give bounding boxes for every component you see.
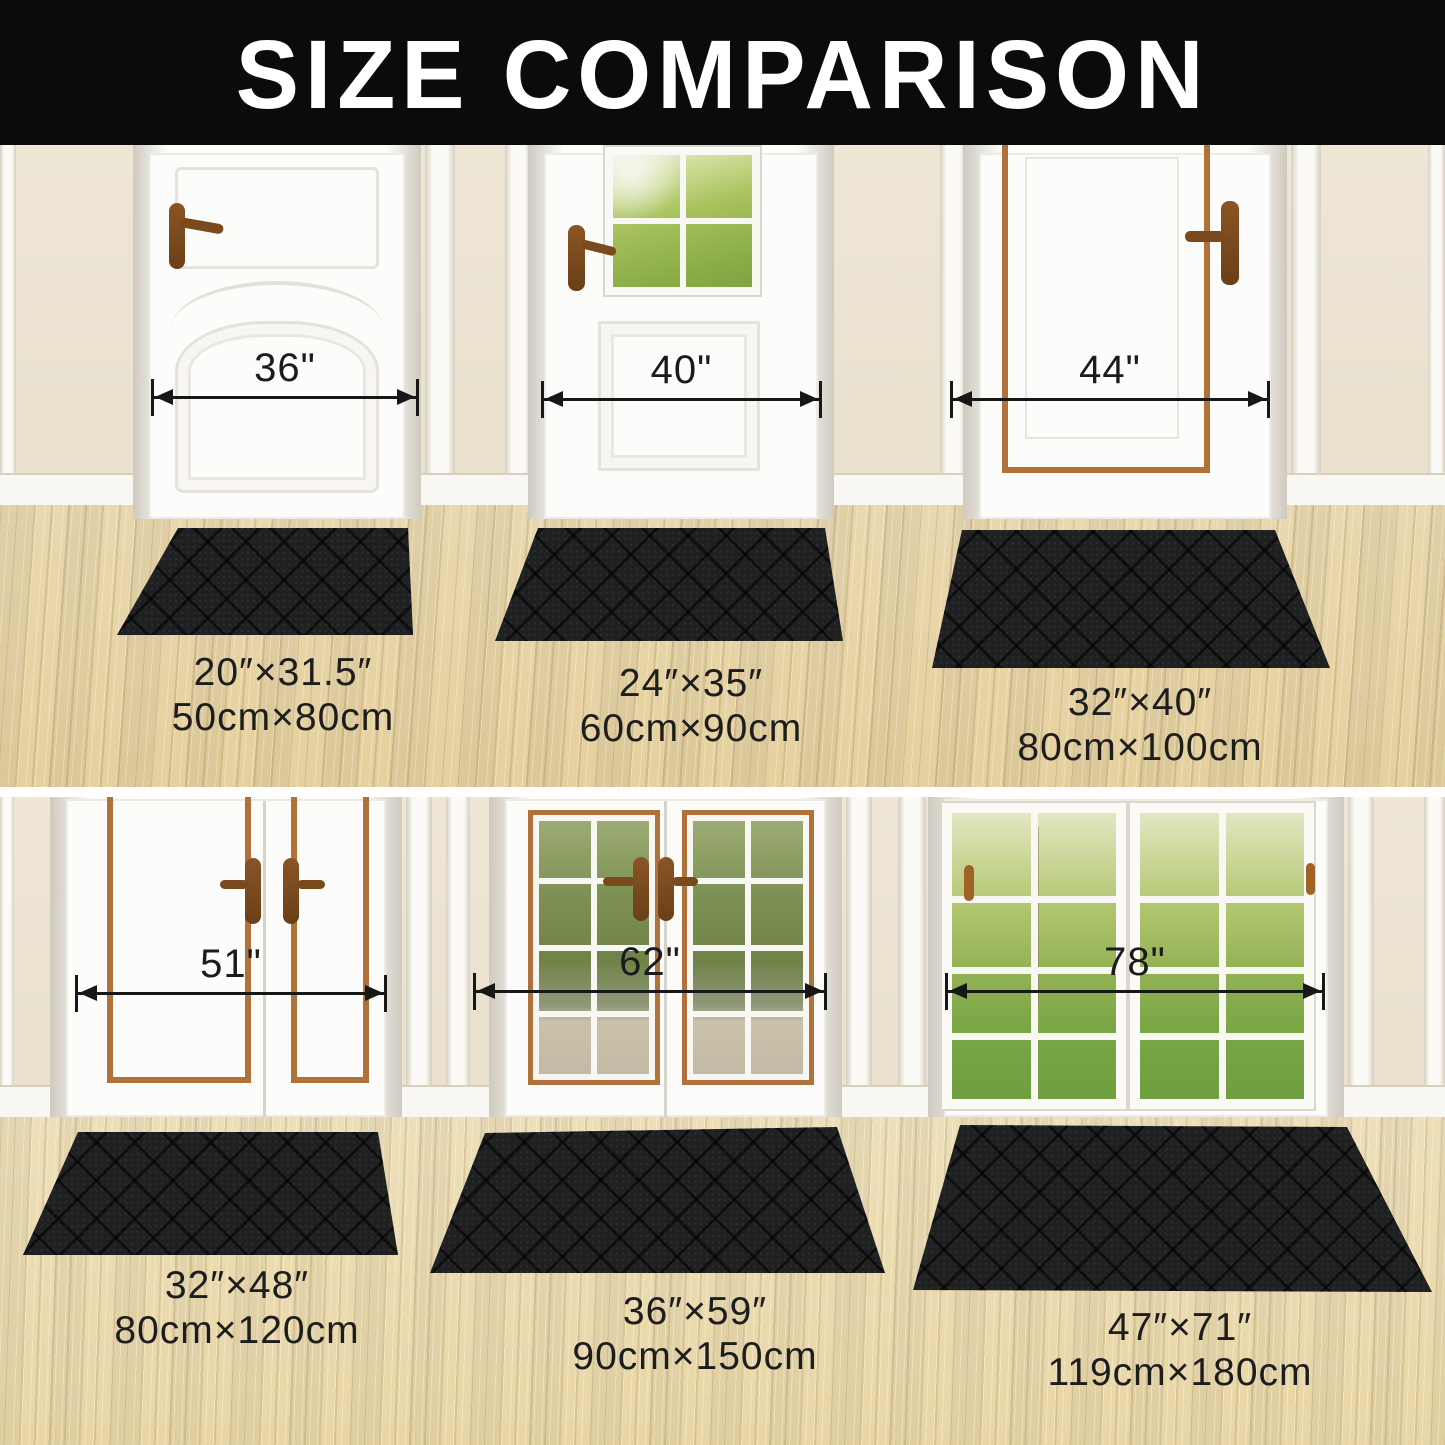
title-banner: SIZE COMPARISON (0, 0, 1445, 145)
section-divider (0, 787, 1445, 797)
door-44 (963, 145, 1287, 519)
mat-size-label: 20″×31.5″ 50cm×80cm (113, 650, 453, 740)
door-width-measurement: 62" (473, 973, 827, 1010)
mat-size-label: 36″×59″ 90cm×150cm (525, 1289, 865, 1379)
arrow-left-icon (949, 983, 967, 999)
mat-size-label: 47″×71″ 119cm×180cm (1010, 1305, 1350, 1395)
arrow-right-icon (1248, 391, 1266, 407)
scene-double-doors: 51" 32″×48″ 80cm×120cm (0, 797, 1445, 1445)
copper-trim (291, 797, 369, 1083)
door-40 (528, 145, 834, 519)
wall-trim (1291, 145, 1321, 479)
page-title: SIZE COMPARISON (14, 0, 1430, 145)
doormat-32x48 (21, 1127, 401, 1260)
wall-trim (406, 797, 432, 1105)
mat-size-inches: 32″×48″ (67, 1263, 407, 1308)
door-width-measurement: 44" (950, 381, 1270, 418)
door-width-label: 51" (200, 942, 262, 987)
mat-size-label: 24″×35″ 60cm×90cm (521, 661, 861, 751)
wall-trim (446, 797, 470, 1105)
door-handle-lever (220, 880, 248, 889)
mat-size-cm: 119cm×180cm (1010, 1350, 1350, 1395)
door-window (682, 810, 814, 1085)
door-width-measurement: 36" (151, 379, 419, 416)
door-handle-lever (672, 877, 698, 886)
copper-trim (107, 797, 251, 1083)
door-panel (175, 167, 379, 269)
sliding-door-sash (942, 803, 1126, 1109)
arrow-left-icon (954, 391, 972, 407)
door-handle (658, 857, 674, 921)
arrow-right-icon (397, 389, 415, 405)
scene-single-doors: 36" 20″×31.5″ 50cm×80cm 40" (0, 145, 1445, 787)
door-handle-lever (297, 880, 325, 889)
doormat-24x35 (490, 524, 848, 645)
mat-size-cm: 80cm×120cm (67, 1308, 407, 1353)
mat-size-inches: 36″×59″ (525, 1289, 865, 1334)
mat-size-cm: 80cm×100cm (970, 725, 1310, 770)
wall-trim (0, 145, 16, 479)
size-comparison-infographic: SIZE COMPARISON 36" (0, 0, 1445, 1445)
mat-size-inches: 24″×35″ (521, 661, 861, 706)
door-handle-lever (603, 877, 635, 886)
door-handle-lever (1185, 231, 1225, 242)
door-handle (568, 225, 585, 291)
wall-trim (898, 797, 926, 1105)
door-width-label: 78" (1104, 940, 1166, 985)
doormat-32x40 (926, 528, 1336, 672)
wall-trim (1348, 797, 1374, 1105)
arrow-right-icon (800, 391, 818, 407)
door-handle (1221, 201, 1239, 285)
mat-size-inches: 32″×40″ (970, 680, 1310, 725)
arrow-right-icon (365, 985, 383, 1001)
door-width-label: 44" (1079, 348, 1141, 393)
mat-size-inches: 47″×71″ (1010, 1305, 1350, 1350)
mat-size-cm: 50cm×80cm (113, 695, 453, 740)
door-36 (133, 145, 421, 519)
wall-trim (425, 145, 455, 479)
wall-trim (1428, 145, 1445, 479)
arrow-left-icon (155, 389, 173, 405)
arrow-left-icon (79, 985, 97, 1001)
door-width-measurement: 40" (541, 381, 822, 418)
measure-line (153, 396, 417, 399)
mat-size-inches: 20″×31.5″ (113, 650, 453, 695)
door-handle (633, 857, 649, 921)
door-leaf (149, 153, 405, 519)
mat-size-cm: 60cm×90cm (521, 706, 861, 751)
mat-size-label: 32″×48″ 80cm×120cm (67, 1263, 407, 1353)
wall-trim (1424, 797, 1445, 1105)
mat-size-cm: 90cm×150cm (525, 1334, 865, 1379)
door-width-label: 40" (651, 348, 713, 393)
door-handle (245, 858, 261, 924)
wall-trim (0, 797, 14, 1105)
mat-size-label: 32″×40″ 80cm×100cm (970, 680, 1310, 770)
arrow-left-icon (477, 983, 495, 999)
door-width-measurement: 51" (75, 975, 387, 1012)
door-handle (964, 865, 974, 901)
door-width-measurement: 78" (945, 973, 1325, 1010)
arrow-right-icon (805, 983, 823, 999)
door-handle (1306, 863, 1315, 895)
wall-trim (846, 797, 872, 1105)
door-handle (169, 203, 185, 269)
door-split (263, 801, 266, 1117)
door-window (605, 147, 760, 295)
arrow-left-icon (545, 391, 563, 407)
door-handle (283, 858, 299, 924)
doormat-47x71 (911, 1123, 1435, 1295)
arrow-right-icon (1303, 983, 1321, 999)
door-width-label: 62" (619, 940, 681, 985)
doormat-36x59 (428, 1125, 888, 1277)
door-width-label: 36" (254, 346, 316, 391)
